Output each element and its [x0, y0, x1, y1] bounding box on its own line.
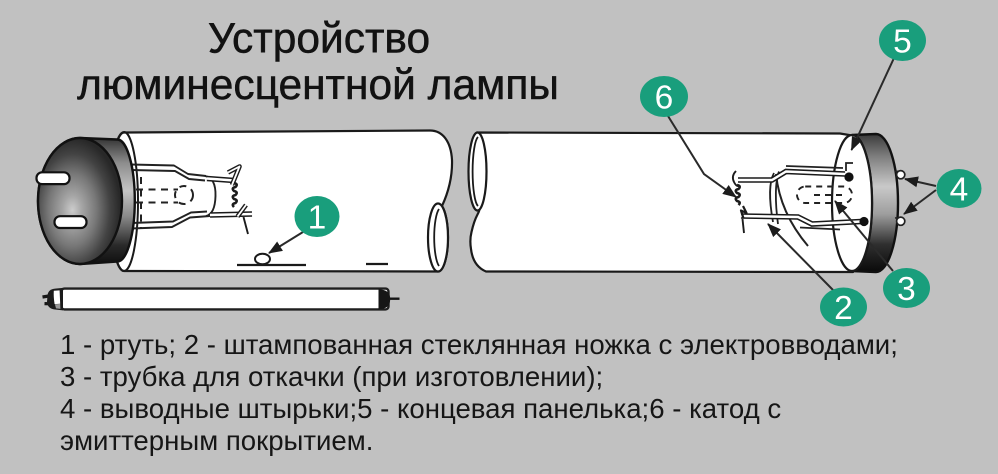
- svg-text:эмиттерным покрытием.: эмиттерным покрытием.: [60, 425, 373, 456]
- svg-text:люминесцентной лампы: люминесцентной лампы: [77, 62, 559, 109]
- svg-text:4: 4: [950, 172, 969, 209]
- svg-text:4 - выводные штырьки;5 - конце: 4 - выводные штырьки;5 - концевая панель…: [60, 393, 781, 424]
- svg-text:Устройство: Устройство: [208, 16, 430, 63]
- svg-text:1 - ртуть; 2 - штампованная ст: 1 - ртуть; 2 - штампованная стеклянная н…: [60, 329, 898, 360]
- svg-text:1: 1: [308, 200, 327, 237]
- svg-text:3 - трубка для откачки (при из: 3 - трубка для откачки (при изготовлении…: [60, 361, 603, 392]
- svg-text:6: 6: [655, 80, 674, 117]
- svg-text:5: 5: [893, 24, 912, 61]
- svg-text:3: 3: [897, 271, 916, 308]
- svg-text:2: 2: [834, 290, 853, 327]
